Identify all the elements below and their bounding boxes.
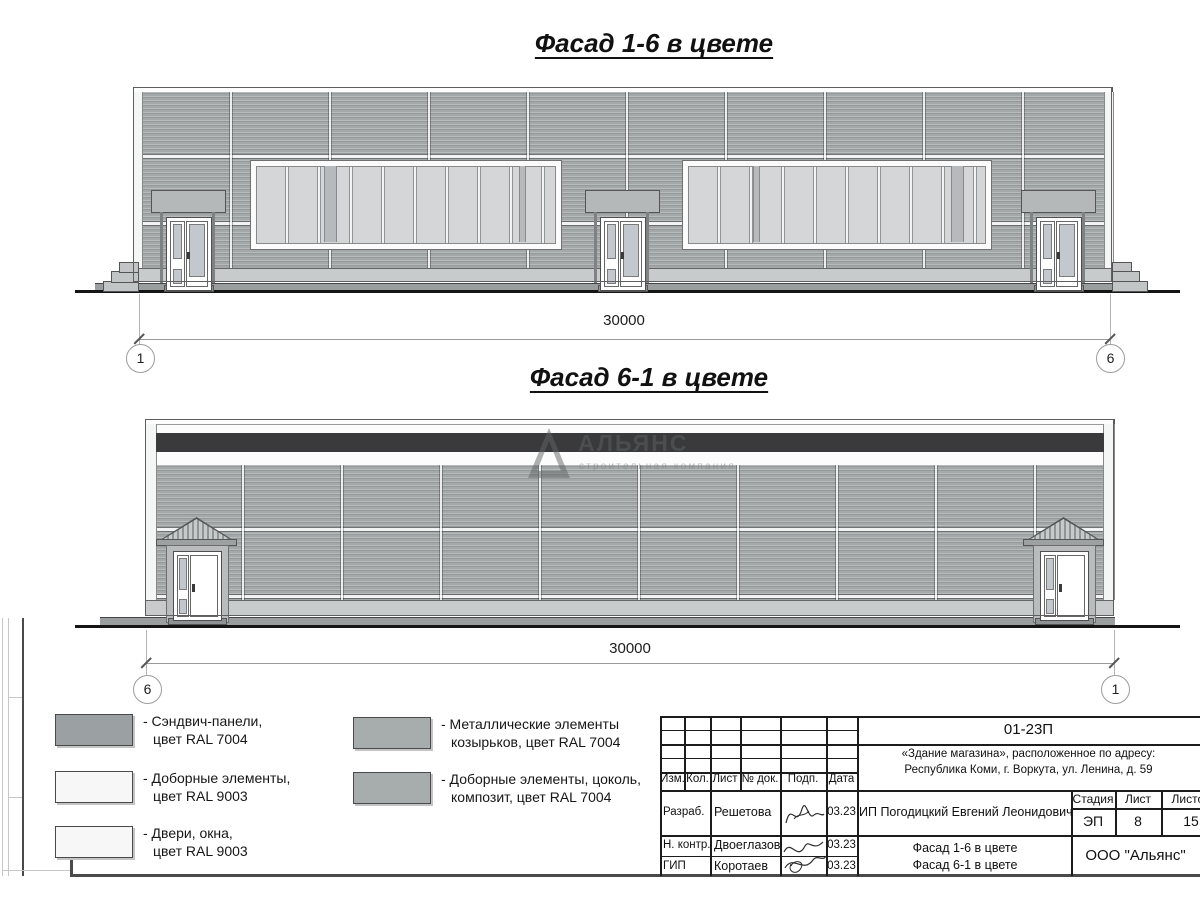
door-glass — [623, 224, 639, 277]
door-glass — [173, 269, 182, 284]
legend-line: - Доборные элементы, цоколь, — [441, 770, 641, 788]
legend-line: цвет RAL 9003 — [143, 842, 248, 860]
window-glazing — [256, 166, 556, 244]
legend-swatch-canopy-metal — [353, 717, 431, 749]
window-glazing — [688, 166, 986, 244]
tb-date: 03.23 — [826, 835, 857, 856]
facade1-title: Фасад 1-6 в цвете — [404, 28, 904, 59]
facade2-ground-line — [75, 625, 1180, 628]
tb-doc-code: 01-23П — [857, 716, 1200, 744]
door-handle — [1059, 584, 1062, 592]
legend-line: козырьков, цвет RAL 7004 — [441, 733, 620, 751]
legend-swatch-sandwich-panels — [55, 714, 133, 746]
facade2-door-right — [1040, 551, 1089, 621]
canopy-post — [212, 212, 215, 288]
titleblock-line — [660, 716, 662, 876]
margin-line — [8, 618, 9, 876]
legend-line: - Сэндвич-панели, — [143, 712, 262, 730]
legend-line: цвет RAL 7004 — [143, 730, 262, 748]
margin-line — [2, 618, 3, 876]
facade1-dimension-text: 30000 — [524, 312, 724, 329]
facade1-door-left — [166, 217, 212, 291]
legend-line: композит, цвет RAL 7004 — [441, 788, 641, 806]
tb-col-izm: Изм. — [660, 773, 685, 785]
axis-marker-1: 1 — [1101, 675, 1130, 704]
legend-line: - Доборные элементы, — [143, 769, 290, 787]
door-sidelight — [1044, 555, 1056, 617]
window-wide-mullion — [324, 166, 337, 242]
legend-label: - Двери, окна, цвет RAL 9003 — [143, 824, 248, 860]
signature-nkontr-gip — [779, 836, 827, 878]
door-glass — [1043, 224, 1052, 259]
facade1-canopy-right — [1021, 190, 1096, 213]
tb-sheet-label: Лист — [1115, 791, 1161, 808]
door-glass — [607, 224, 616, 259]
tb-sheet-value: 8 — [1115, 808, 1161, 835]
legend-label: - Металлические элементы козырьков, цвет… — [441, 715, 620, 751]
tb-address-line1: «Здание магазина», расположенное по адре… — [860, 748, 1197, 760]
margin-line — [8, 697, 22, 698]
tb-sheets-label: Листов — [1161, 791, 1200, 808]
tb-name-korotaev: Коротаев — [714, 857, 780, 876]
margin-line — [8, 797, 22, 798]
door-glass — [179, 558, 187, 590]
door-sidelight — [177, 555, 189, 617]
tb-col-podp: Подп. — [780, 773, 826, 785]
facade1-window-band-left — [250, 160, 562, 250]
legend-swatch-trim-elements — [55, 771, 133, 803]
facade2-plinth — [145, 600, 1114, 616]
door-glass — [1043, 269, 1052, 284]
facade1-door-center — [600, 217, 646, 291]
legend-label: - Доборные элементы, цоколь, композит, ц… — [441, 770, 641, 806]
legend-line: - Металлические элементы — [441, 715, 620, 733]
watermark-company-name: АЛЬЯНС — [578, 430, 688, 457]
door-glass — [607, 269, 616, 284]
frame-corner-stub — [70, 856, 73, 876]
facade2-wall — [145, 465, 1115, 600]
facade2-title: Фасад 6-1 в цвете — [399, 362, 899, 393]
legend-line: цвет RAL 9003 — [143, 787, 290, 805]
facade1-window-band-right — [682, 160, 992, 250]
canopy-post — [594, 212, 597, 288]
door-glass — [173, 224, 182, 259]
door-handle — [621, 252, 624, 259]
legend-label: - Сэндвич-панели, цвет RAL 7004 — [143, 712, 262, 748]
margin-line — [2, 870, 70, 871]
axis-marker-6: 6 — [1096, 344, 1125, 373]
facade1-corner-trim-left — [133, 92, 143, 268]
drawing-sheet: Фасад 1-6 в цвете — [0, 0, 1200, 900]
dimension-line — [139, 339, 1110, 340]
legend-label: - Доборные элементы, цвет RAL 9003 — [143, 769, 290, 805]
dimension-line — [146, 663, 1114, 664]
canopy-post — [646, 212, 649, 288]
tb-stage-value: ЭП — [1071, 808, 1115, 835]
canopy-post — [1030, 212, 1033, 288]
facade1-door-right — [1036, 217, 1082, 291]
door-handle — [187, 252, 190, 259]
tb-date: 03.23 — [826, 857, 857, 876]
door-glass — [189, 224, 205, 277]
tb-name-reshetova: Решетова — [714, 790, 780, 835]
tb-sheet-title-line1: Фасад 1-6 в цвете — [859, 841, 1071, 855]
tb-date: 03.23 — [826, 790, 857, 835]
facade2-door-left — [173, 551, 222, 621]
extension-line — [146, 630, 147, 675]
axis-marker-1: 1 — [126, 344, 155, 373]
door-handle — [192, 584, 195, 592]
door-glass — [1046, 599, 1054, 614]
steps-right — [1112, 281, 1148, 292]
frame-bottom-line — [70, 874, 1200, 877]
extension-line — [1114, 630, 1115, 675]
tb-address-line2: Республика Коми, г. Воркута, ул. Ленина,… — [860, 764, 1197, 776]
tb-col-kol: Кол. — [685, 773, 710, 785]
tb-role-gip: ГИП — [663, 857, 710, 876]
legend-line: - Двери, окна, — [143, 824, 248, 842]
facade1-canopy-center — [585, 190, 660, 213]
facade2-dimension-text: 30000 — [530, 640, 730, 657]
window-wide-mullion — [951, 166, 964, 242]
canopy-post — [160, 212, 163, 288]
door-glass — [1046, 558, 1054, 590]
tb-col-doc: № док. — [740, 773, 780, 785]
tb-sheet-title-line2: Фасад 6-1 в цвете — [859, 858, 1071, 872]
titleblock-line — [710, 716, 712, 876]
tb-col-list: Лист — [710, 773, 740, 785]
tb-col-data: Дата — [826, 773, 857, 785]
tb-company: ООО "Альянс" — [1071, 835, 1200, 876]
legend-swatch-plinth-composite — [353, 772, 431, 804]
watermark-tagline: строительная компания — [579, 461, 736, 472]
tb-sheets-value: 15 — [1161, 808, 1200, 835]
tb-role-razrab: Разраб. — [663, 790, 710, 835]
facade2-corner-trim-right — [1103, 424, 1115, 600]
canopy-post — [1082, 212, 1085, 288]
tb-name-dvoeglazov: Двоеглазов — [714, 835, 780, 856]
window-wide-mullion — [519, 166, 526, 242]
door-glass — [1059, 224, 1075, 277]
frame-left-line — [22, 618, 24, 876]
axis-marker-6: 6 — [133, 675, 162, 704]
door-leaf — [1040, 221, 1055, 287]
window-wide-mullion — [753, 166, 760, 242]
tb-role-nkontr: Н. контр. — [663, 835, 710, 856]
tb-stage-label: Стадия — [1071, 791, 1115, 808]
alliance-logo-watermark — [528, 428, 570, 478]
steps-left — [119, 262, 139, 273]
facade1-canopy-left — [151, 190, 226, 213]
door-handle — [1057, 252, 1060, 259]
tb-client: ИП Погодицкий Евгений Леонидович — [859, 790, 1071, 835]
facade1-corner-trim-right — [1104, 92, 1114, 268]
legend-swatch-doors-windows — [55, 826, 133, 858]
door-leaf — [604, 221, 619, 287]
signature-razrab — [782, 793, 826, 835]
door-glass — [179, 599, 187, 614]
door-leaf — [170, 221, 185, 287]
